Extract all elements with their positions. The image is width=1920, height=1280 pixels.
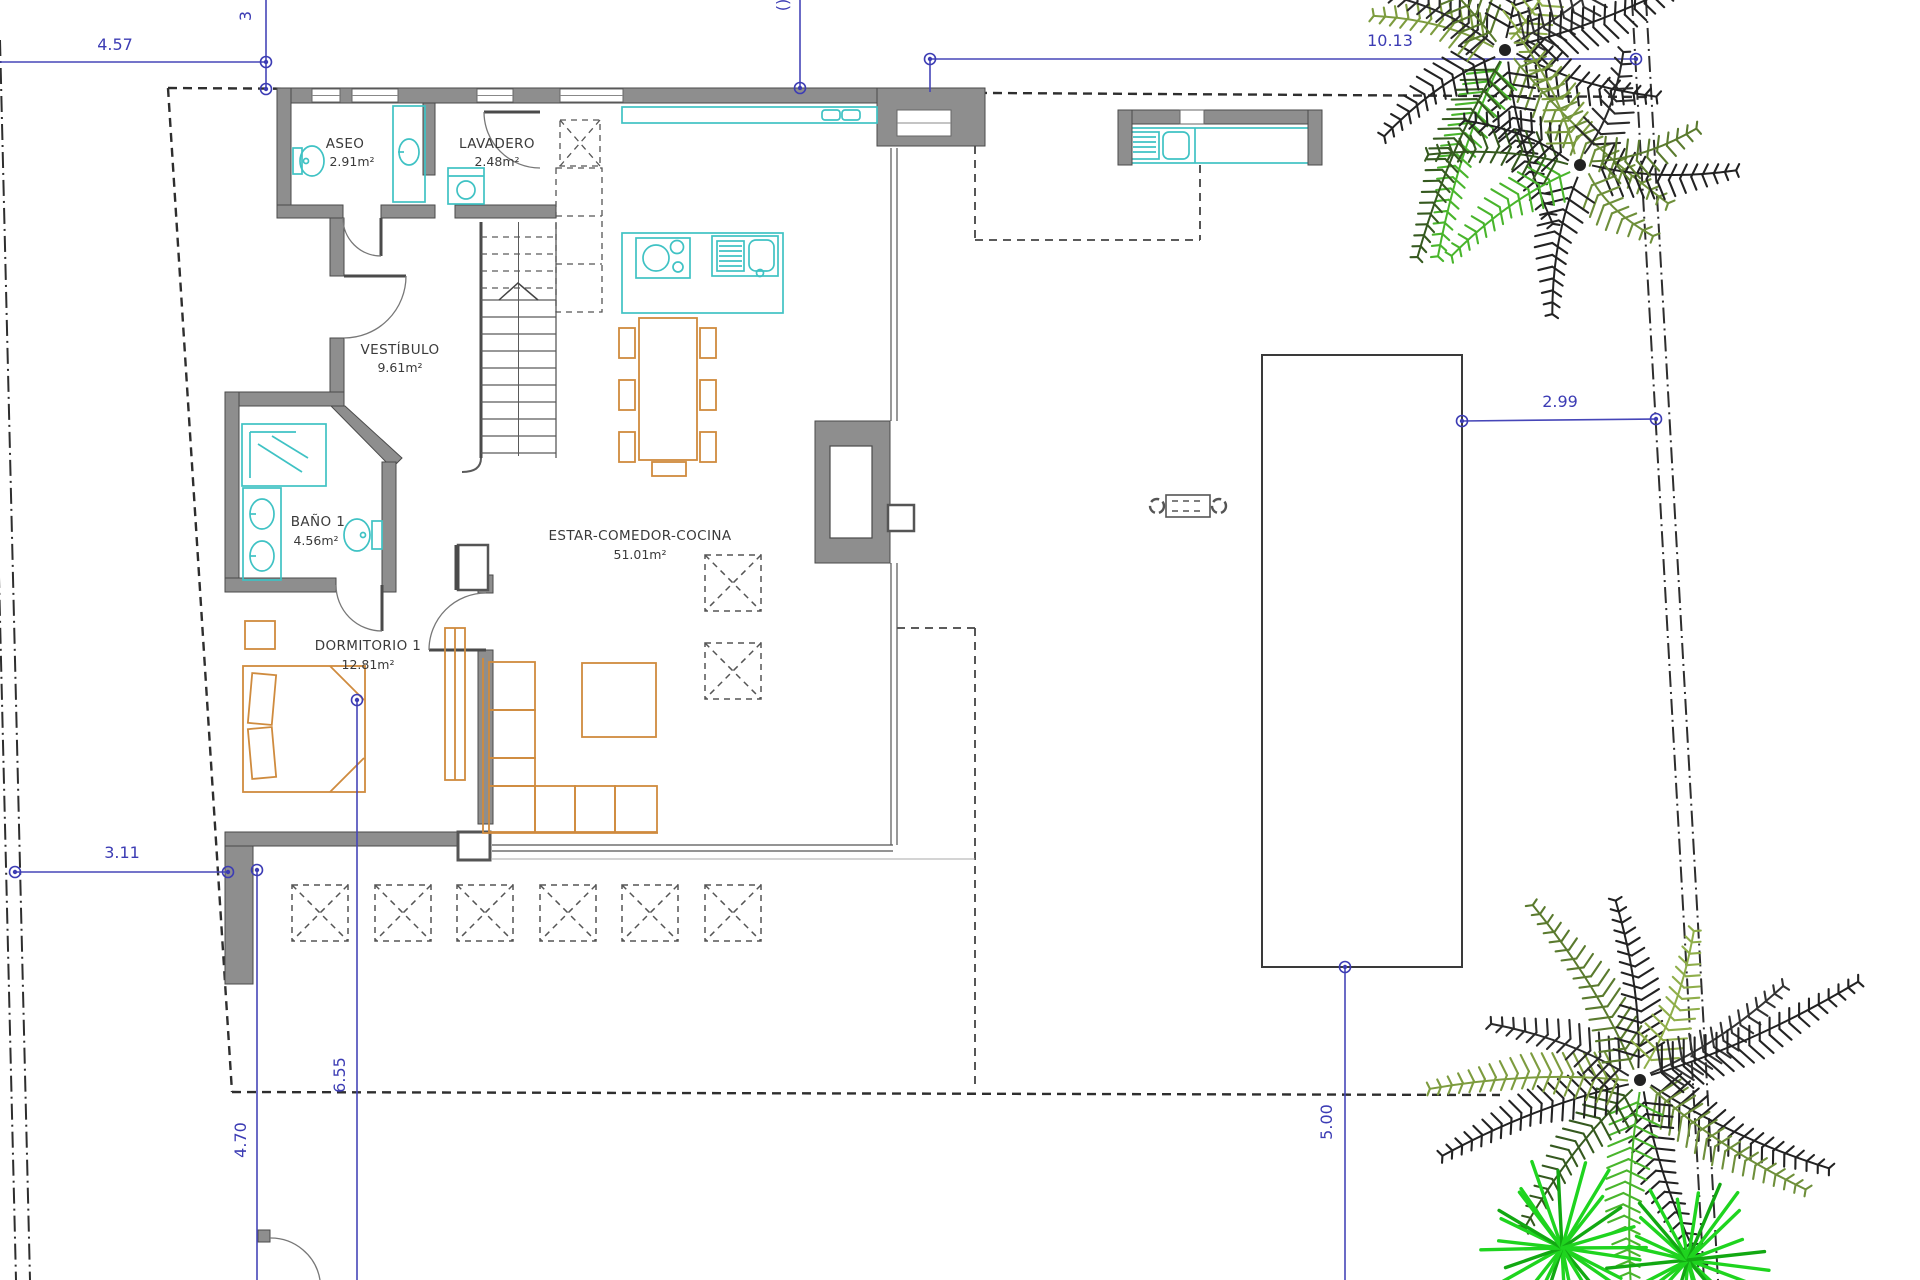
- glass-walls: [492, 148, 975, 859]
- room-area-aseo: 2.91m²: [329, 154, 374, 169]
- room-area-lavadero: 2.48m²: [474, 154, 519, 169]
- dim-clipped-fragment: (): [773, 0, 792, 11]
- bed: [243, 666, 365, 792]
- dining-table: [619, 318, 716, 476]
- floor-plan-canvas: 4.57 3 () 10.13 2.99 3.11 6.55 4.70 5.00…: [0, 0, 1920, 1280]
- dim-front-side: 3: [236, 11, 255, 21]
- room-label-dormitorio1: DORMITORIO 1: [315, 638, 422, 654]
- room-area-estar: 51.01m²: [614, 547, 667, 562]
- door-arcs: [258, 112, 540, 1280]
- stairs: [462, 222, 556, 472]
- room-area-vestibulo: 9.61m²: [377, 360, 422, 375]
- room-area-dormitorio1: 12.81m²: [342, 657, 395, 672]
- sun-lounger-icon: [1150, 495, 1226, 517]
- toilet2-icon: [344, 519, 382, 551]
- room-label-aseo: ASEO: [326, 136, 365, 152]
- room-label-estar: ESTAR-COMEDOR-COCINA: [549, 528, 732, 544]
- dim-pool-to-boundary: 2.99: [1542, 392, 1578, 411]
- room-label-lavadero: LAVADERO: [459, 136, 535, 152]
- dim-pool-side: 5.00: [1317, 1104, 1336, 1140]
- nightstand: [245, 621, 275, 649]
- dim-side-setback: 3.11: [104, 843, 140, 862]
- shower-icon: [242, 424, 326, 486]
- structural-columns: [457, 446, 914, 860]
- outdoor-kitchen-counter: [1127, 128, 1313, 163]
- kitchen-island: [622, 233, 783, 313]
- dim-terrace-depth: 6.55: [330, 1057, 349, 1093]
- room-area-bano1: 4.56m²: [293, 533, 338, 548]
- washing-machine-icon: [448, 168, 484, 204]
- floor-plan-drawing: 4.57 3 () 10.13 2.99 3.11 6.55 4.70 5.00…: [0, 0, 1920, 1280]
- dim-rear-width: 10.13: [1367, 31, 1413, 50]
- dim-front-width: 4.57: [97, 35, 133, 54]
- pool: [1262, 355, 1462, 967]
- room-label-vestibulo: VESTÍBULO: [361, 341, 440, 358]
- coffee-table: [582, 663, 656, 737]
- kitchen-tall-units: [556, 120, 602, 312]
- terrace-dashed-lines: [897, 146, 1200, 1090]
- sofa: [483, 658, 658, 833]
- toilet-icon: [293, 146, 324, 176]
- aseo-basin-icon: [393, 106, 425, 202]
- double-basin-icon: [243, 488, 281, 580]
- room-label-bano1: BAÑO 1: [291, 513, 346, 530]
- pergola-grid: [292, 555, 761, 941]
- dim-front-setback: 4.70: [231, 1122, 250, 1158]
- kitchen-counter: [622, 107, 877, 123]
